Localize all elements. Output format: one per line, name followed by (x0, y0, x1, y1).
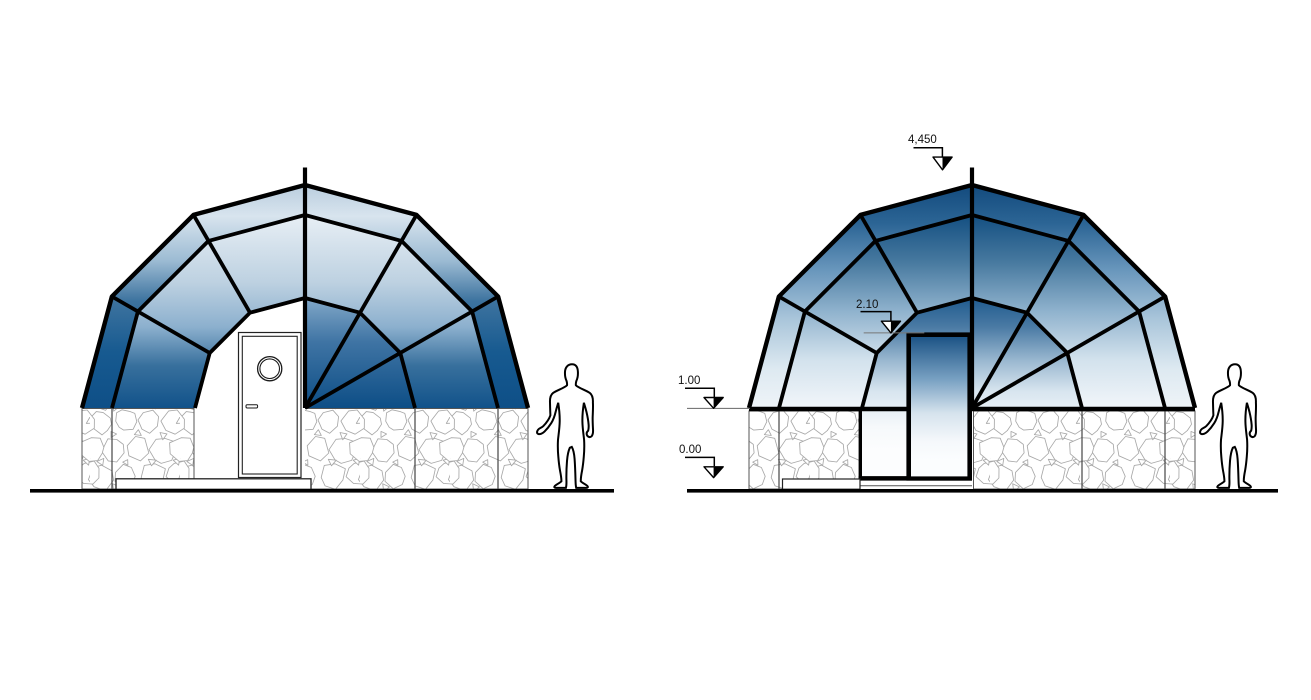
svg-text:4,450: 4,450 (908, 134, 937, 146)
svg-text:1.00: 1.00 (678, 375, 700, 387)
svg-text:2.10: 2.10 (856, 299, 878, 311)
svg-text:0.00: 0.00 (679, 444, 701, 456)
